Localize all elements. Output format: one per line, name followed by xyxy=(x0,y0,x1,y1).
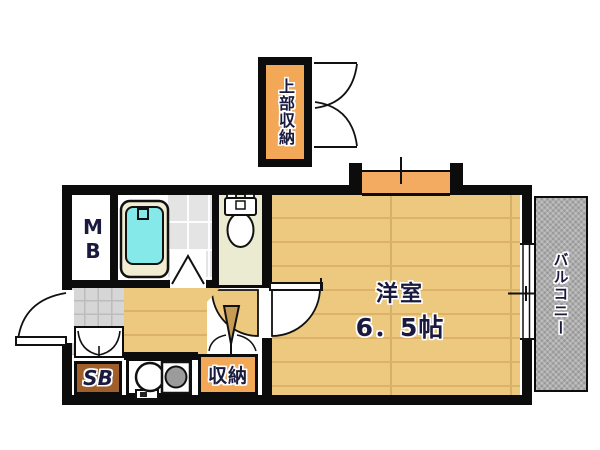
wall-main-lower xyxy=(262,338,272,405)
genkan-closet-doors xyxy=(74,326,124,358)
entrance-door-icon xyxy=(16,293,66,345)
shoe-box-label: SB xyxy=(83,366,113,390)
balcony-window-gap xyxy=(520,243,534,340)
wall-bath-toilet xyxy=(212,195,219,280)
bay-window-sill xyxy=(362,193,450,196)
bath-fold-door-gap xyxy=(170,250,206,288)
balcony: バルコニー xyxy=(534,196,588,392)
entrance-door-gap xyxy=(60,290,74,343)
storage-box: 収納 xyxy=(198,354,258,395)
bay-window xyxy=(362,172,450,193)
floor-plan: 上部収納 バルコニー SB 収納 MB 洋室 6．5帖 xyxy=(0,0,600,450)
wall-mb-right xyxy=(110,195,118,280)
main-room-label: 洋室 6．5帖 xyxy=(300,276,500,344)
storage-label: 収納 xyxy=(208,361,248,388)
bay-window-top-line xyxy=(362,170,450,172)
wall-toilet-main xyxy=(262,185,272,288)
upper-storage-door-area xyxy=(312,62,360,148)
main-room-size: 6．5帖 xyxy=(356,308,445,344)
kitchen-counter xyxy=(126,358,192,396)
main-room-name: 洋室 xyxy=(376,276,424,308)
meter-box-label: MB xyxy=(76,216,110,262)
bay-pillar-right xyxy=(450,163,463,195)
toilet-threshold xyxy=(219,285,262,288)
balcony-label: バルコニー xyxy=(551,252,572,337)
upper-storage-fill: 上部収納 xyxy=(266,65,304,159)
upper-storage-label: 上部収納 xyxy=(273,78,297,146)
shoe-box: SB xyxy=(74,361,122,395)
bay-pillar-left xyxy=(349,163,362,195)
